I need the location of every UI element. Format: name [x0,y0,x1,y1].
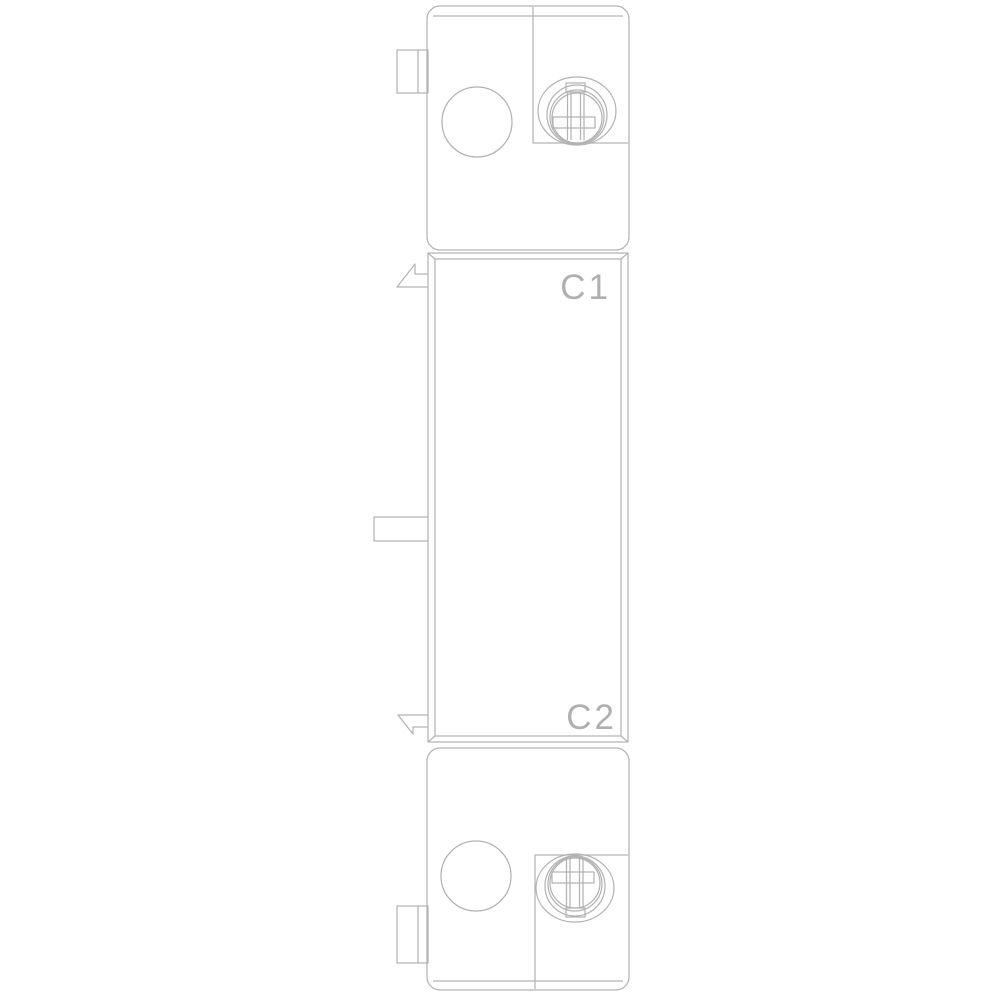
body-corner-chamfers [428,253,628,742]
bottom-tab-outline [397,906,428,963]
bottom-latch-hook [398,715,428,734]
drawing-canvas: C1 C2 [0,0,1000,1000]
body-face-panel [435,259,621,736]
top-terminal-screw [538,77,616,145]
body-outline [428,253,628,742]
bottom-terminal-block [397,748,629,990]
terminal-label-c1: C1 [560,268,611,307]
top-screw-cross-slot-vertical [568,92,585,140]
top-screw-recess-outer [538,77,616,145]
bottom-screw-recess-inner [548,857,602,911]
center-body: C1 C2 [374,253,628,742]
top-latch-hook [397,264,428,287]
top-cavity-circle [442,87,512,157]
top-terminal-block [397,6,629,250]
side-mounting-lug [374,517,428,541]
top-block-outline [427,6,629,250]
bottom-mounting-tab [397,906,428,963]
top-screw-cross-slot-horizontal [553,117,595,128]
bottom-terminal-screw [536,854,614,922]
top-tab-outline [397,50,428,93]
technical-line-drawing: C1 C2 [0,0,1000,1000]
top-screw-recess-mid [547,85,607,145]
bottom-screw-recess-mid [545,856,605,916]
bottom-screw-cross-slot-horizontal [552,872,594,883]
bottom-block-outline [427,748,629,990]
terminal-label-c2: C2 [566,698,617,737]
bottom-cavity-circle [441,841,511,911]
top-mounting-tab [397,50,428,93]
